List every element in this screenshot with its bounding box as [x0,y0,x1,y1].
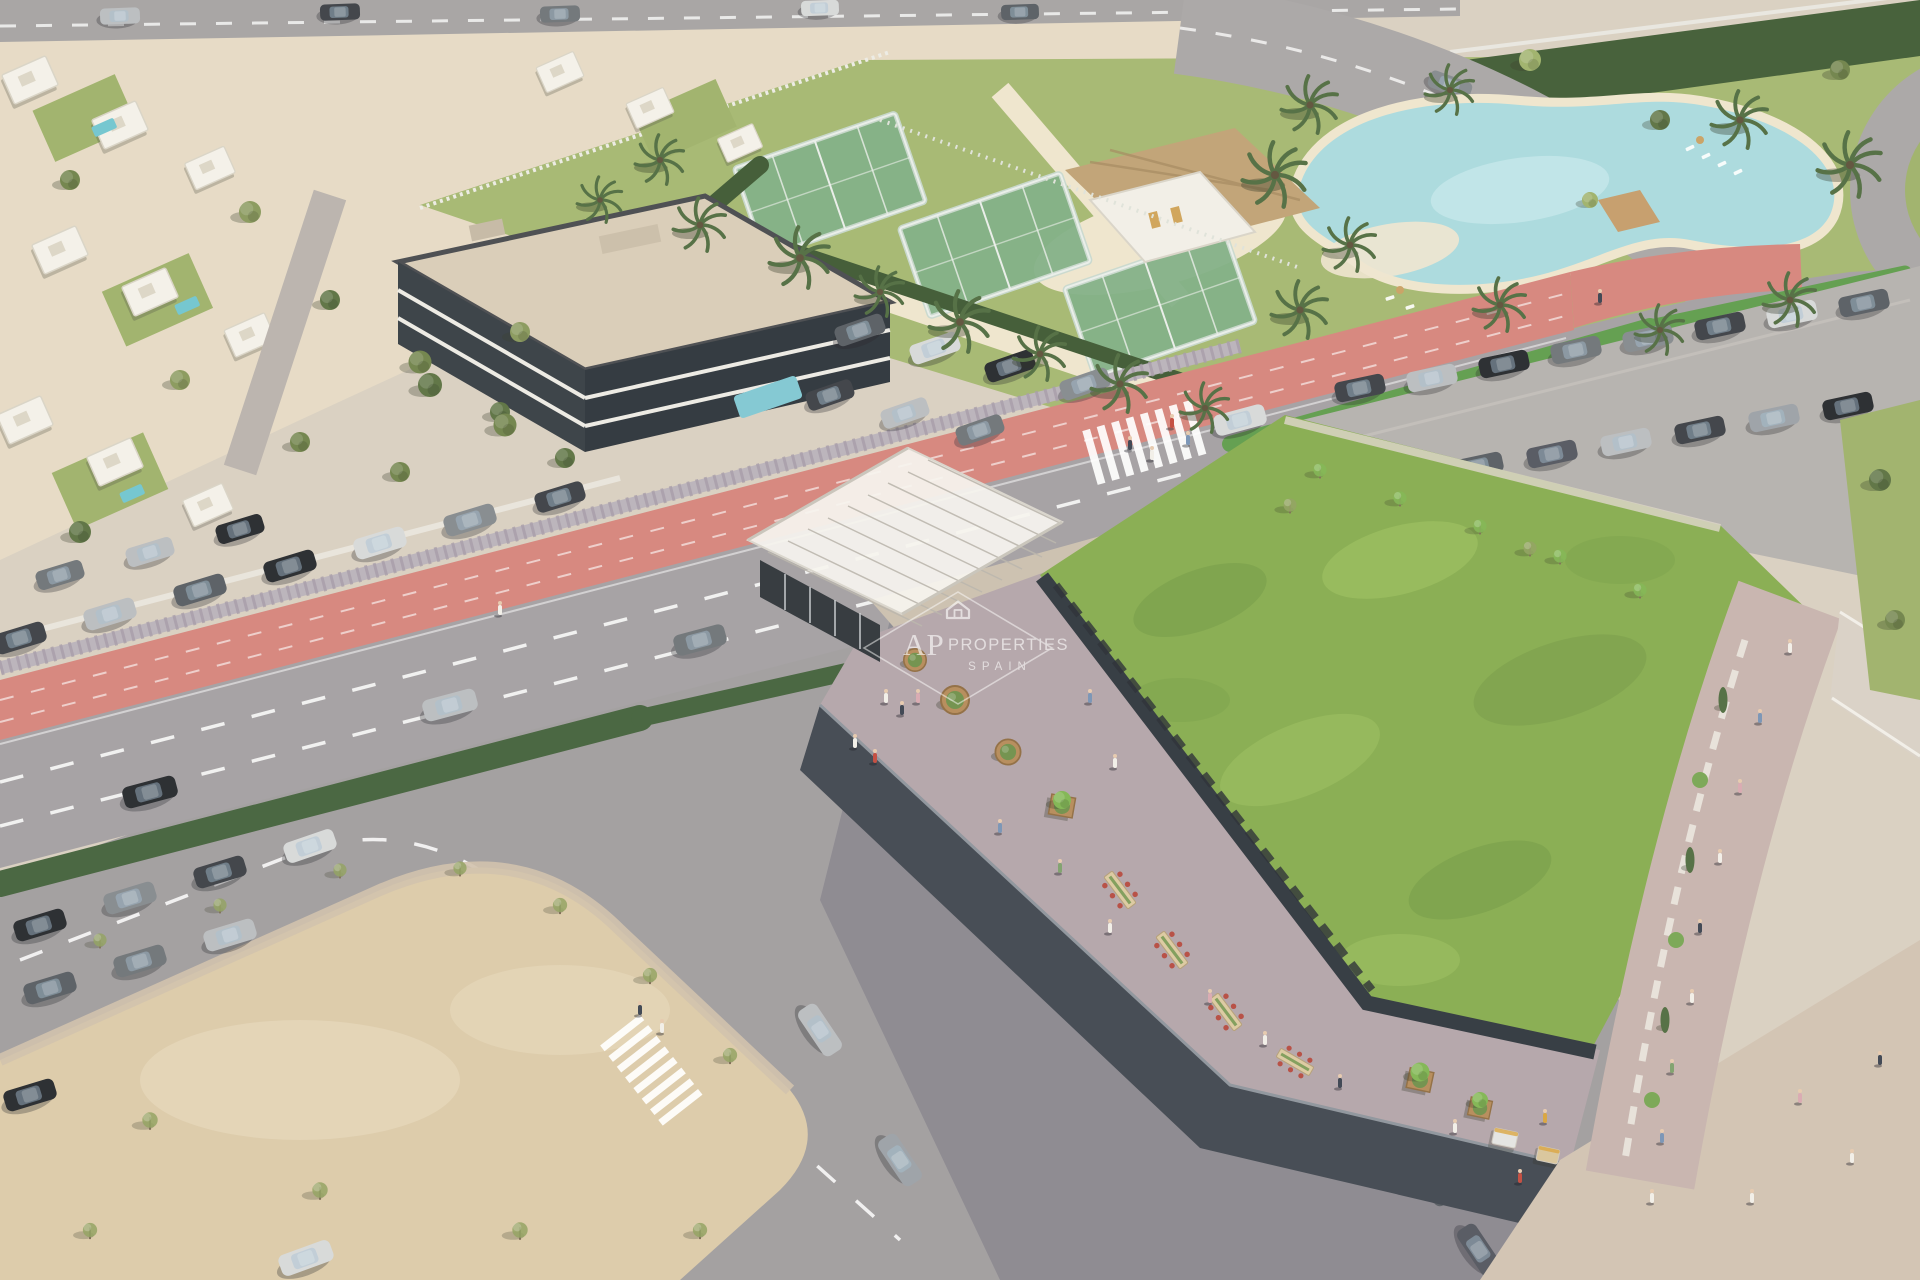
haze-overlay [0,0,1920,1280]
aerial-render: AP PROPERTIES SPAIN [0,0,1920,1280]
scene-canvas: AP PROPERTIES SPAIN [0,0,1920,1280]
